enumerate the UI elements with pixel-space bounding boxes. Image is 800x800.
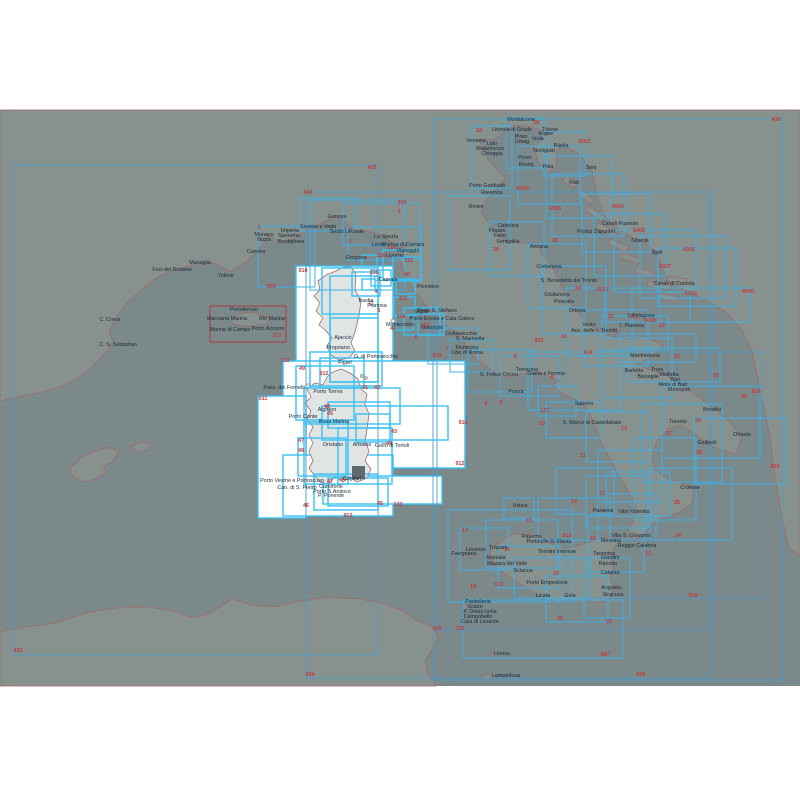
islet <box>638 318 640 320</box>
nautical-chart-index-map: 4324324344344364384351399099099109119129… <box>0 0 800 800</box>
islet <box>612 329 615 332</box>
islet <box>512 388 516 392</box>
islet-highlighted <box>365 377 368 380</box>
islet <box>470 555 473 558</box>
islet <box>591 507 594 510</box>
islet-highlighted <box>361 375 364 378</box>
islet <box>629 327 631 329</box>
islet <box>510 504 514 508</box>
islet-highlighted <box>369 301 373 305</box>
islet-highlighted <box>391 319 395 323</box>
islet <box>598 510 602 514</box>
islet <box>467 547 471 551</box>
islet <box>490 652 494 656</box>
islet <box>460 552 464 556</box>
islet <box>461 604 467 610</box>
chart-index-page: 4324324344344364384351399099099109119129… <box>0 0 800 800</box>
islet <box>365 257 368 260</box>
islet <box>582 503 586 507</box>
selected-chart-square <box>352 466 365 479</box>
islet <box>616 330 618 332</box>
